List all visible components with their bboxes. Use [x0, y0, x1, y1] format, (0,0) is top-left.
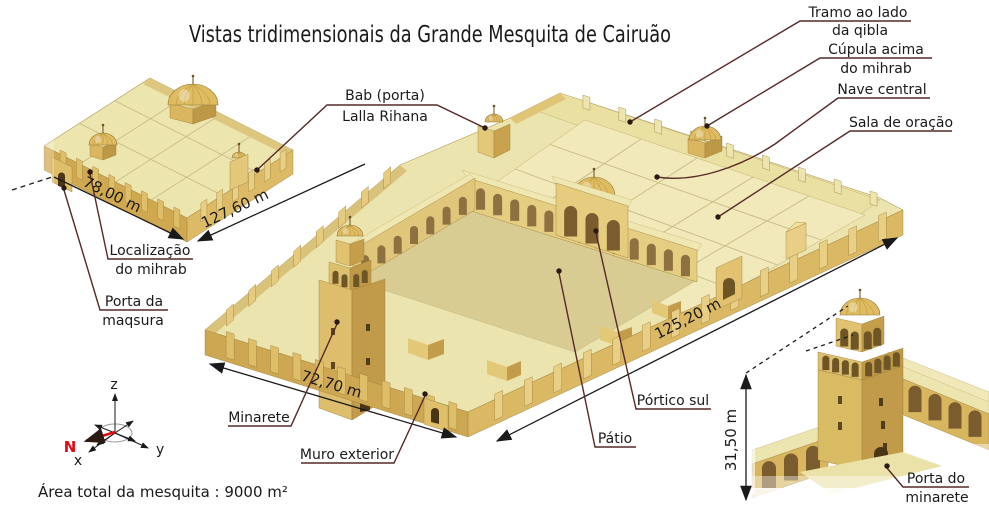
label-porta-minarete-1: Porta do	[907, 471, 965, 487]
porta-minarete-target-dot	[884, 463, 889, 468]
bab-lalla-rihana-tower	[478, 105, 510, 158]
localizacao-target-dot	[87, 169, 92, 174]
compass-rose: z y x N	[64, 377, 165, 469]
buttress	[790, 253, 798, 283]
arch-opening	[544, 210, 553, 232]
buttress	[819, 240, 827, 270]
cupula-target-dot	[704, 123, 709, 128]
arch-opening	[832, 358, 839, 372]
closeup-tower	[818, 289, 903, 470]
arch-opening	[884, 355, 891, 369]
buttress	[524, 377, 532, 407]
arch-opening	[664, 249, 673, 271]
arch-opening	[969, 410, 982, 436]
dome-highlight	[696, 130, 703, 138]
buttress	[382, 381, 390, 410]
arch-opening	[929, 394, 942, 420]
buttress	[449, 402, 457, 431]
buttress	[619, 107, 626, 122]
dome-finial-ball	[349, 216, 352, 219]
dome-finial-ball	[704, 117, 707, 120]
sala-target-dot	[715, 214, 720, 219]
label-patio: Pátio	[598, 431, 632, 447]
diagram-canvas: Vistas tridimensionais da Grande Mesquit…	[0, 0, 989, 512]
dome-finial-ball	[102, 124, 105, 127]
label-localizacao-2: do mihrab	[115, 262, 187, 278]
arch-opening	[564, 206, 577, 236]
dimension-minaret-height: 31,50 m	[722, 409, 740, 471]
minaret-window	[331, 362, 335, 369]
buttress	[642, 322, 650, 352]
buttress	[834, 179, 841, 194]
buttress	[271, 346, 279, 375]
arch-opening	[586, 213, 599, 243]
muro-target-dot	[422, 391, 427, 396]
bab-main-target-dot	[482, 125, 487, 130]
label-tramo-qibla-2: da qibla	[832, 23, 888, 39]
label-muro-exterior: Muro exterior	[300, 447, 394, 463]
arch-opening	[864, 331, 872, 349]
buttress	[878, 212, 886, 242]
dome-highlight	[343, 228, 349, 235]
dome-finial-ball	[593, 168, 596, 171]
buttress	[655, 119, 662, 134]
arch-opening	[893, 352, 900, 367]
dome-finial-ball	[192, 75, 195, 78]
compass-y-label: y	[156, 442, 164, 458]
patio-target-dot	[556, 268, 561, 273]
buttress	[248, 169, 254, 192]
fade	[30, 66, 44, 206]
arch-opening	[630, 238, 639, 260]
arch-opening	[607, 220, 620, 251]
portico-target-dot	[593, 228, 598, 233]
label-bab-1: Bab (porta)	[345, 88, 425, 104]
compass-z-label: z	[110, 377, 117, 393]
bab-mini-target-dot	[254, 167, 259, 172]
arch-opening	[493, 194, 502, 215]
minaret-window	[366, 324, 370, 331]
label-localizacao-1: Localização	[110, 243, 191, 259]
arch-opening	[949, 402, 962, 429]
buttress	[554, 363, 562, 393]
buttress	[174, 207, 180, 229]
arch-opening	[410, 226, 418, 244]
buttress	[727, 143, 734, 158]
minaret-window	[366, 358, 370, 365]
dome-highlight	[849, 302, 858, 312]
dome-finial-ball	[238, 143, 241, 146]
label-cupula-mihrab-1: Cúpula acima	[828, 42, 924, 58]
arch-opening	[394, 236, 402, 254]
buttress	[404, 388, 412, 417]
arch-opening	[822, 356, 829, 371]
tramo-target-dot	[627, 119, 632, 124]
mihrab-dome	[688, 117, 722, 158]
arch-opening	[874, 359, 881, 374]
nave-target-dot	[654, 174, 659, 179]
arch-opening	[909, 386, 922, 412]
label-nave-central: Nave central	[837, 82, 926, 98]
buttress	[280, 149, 286, 172]
buttress	[760, 267, 768, 297]
arch-opening	[476, 188, 485, 210]
dome-finial-ball	[493, 105, 496, 108]
buttress	[76, 158, 82, 180]
buttress	[870, 191, 877, 206]
label-sala-oracao: Sala de oração	[849, 115, 953, 131]
fade	[0, 66, 30, 206]
buttress	[762, 155, 769, 170]
arch-opening	[842, 360, 849, 375]
arch-opening	[459, 197, 467, 215]
label-portico-sul: Pórtico sul	[637, 393, 709, 409]
dome-highlight	[235, 154, 238, 158]
label-minarete: Minarete	[228, 410, 290, 426]
buttress	[248, 339, 256, 368]
buttress	[495, 390, 503, 420]
total-area-text: Área total da mesquita : 9000 m²	[38, 482, 288, 501]
buttress	[583, 349, 591, 379]
compass-north-label: N	[64, 438, 77, 456]
buttress	[293, 353, 301, 382]
buttress	[798, 167, 805, 182]
maqsura-target-dot	[61, 185, 66, 190]
arch-opening	[865, 362, 872, 377]
arch-opening	[362, 270, 368, 283]
label-cupula-mihrab-2: do mihrab	[840, 61, 912, 77]
arch-opening	[342, 274, 348, 287]
arch-opening	[527, 205, 536, 227]
arch-opening	[333, 271, 339, 284]
arch-opening	[443, 207, 451, 225]
arch-opening	[851, 332, 859, 350]
dome-highlight	[95, 136, 101, 143]
mini-portico-dome	[168, 75, 218, 124]
arch-opening	[873, 328, 881, 346]
label-bab-2: Lalla Rihana	[342, 109, 428, 125]
buttress	[613, 336, 621, 366]
arch-opening	[510, 199, 519, 221]
buttress	[583, 95, 590, 110]
label-porta-minarete-2: minarete	[905, 490, 968, 506]
label-maqsura-2: maqsura	[102, 313, 164, 329]
buttress	[849, 226, 857, 256]
dome-highlight	[179, 89, 190, 102]
dome-highlight	[489, 116, 493, 121]
arch-opening	[647, 244, 656, 266]
arch-opening	[377, 245, 385, 263]
arch-opening	[681, 255, 690, 277]
buttress	[226, 332, 234, 361]
arch-opening	[426, 216, 434, 234]
arch-opening	[852, 362, 859, 376]
label-tramo-qibla-1: Tramo ao lado	[808, 5, 908, 21]
fade	[44, 66, 54, 206]
dome-finial-ball	[859, 289, 862, 292]
label-maqsura-1: Porta da	[105, 294, 163, 310]
minarete-target-dot	[334, 319, 339, 324]
arch-opening	[353, 274, 359, 287]
buttress	[158, 199, 164, 221]
mini-mosque-view	[0, 66, 293, 242]
page-title: Vistas tridimensionais da Grande Mesquit…	[189, 22, 671, 48]
diagram-page: Vistas tridimensionais da Grande Mesquit…	[0, 0, 989, 512]
